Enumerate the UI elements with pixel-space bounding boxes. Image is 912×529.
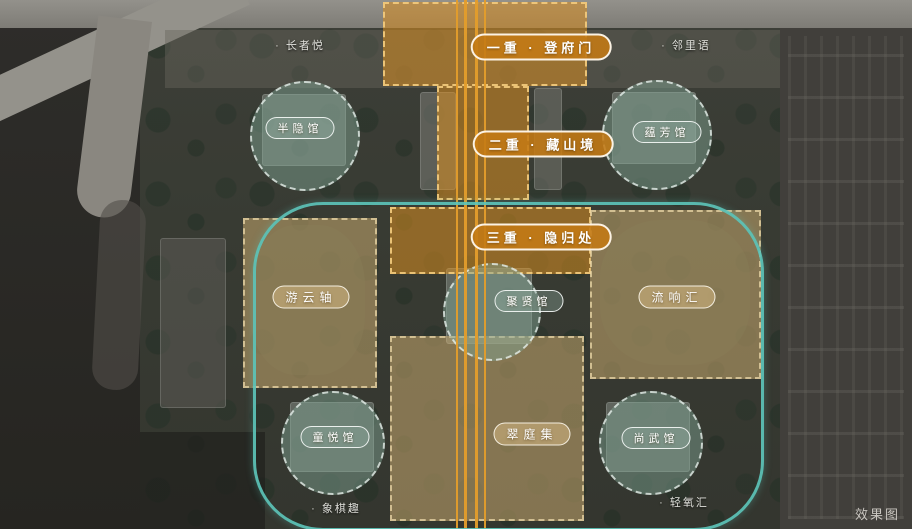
label-pavilion-banyin: 半隐馆 (266, 117, 335, 139)
label-pavilion-shangwu: 尚武馆 (622, 427, 691, 449)
label-pavilion-yunfang: 蕴芳馆 (633, 121, 702, 143)
label-pavilion-tongyue: 童悦馆 (301, 426, 370, 448)
label-axis-second-court: 二重 · 藏山境 (473, 131, 614, 158)
building-footprint (160, 238, 226, 408)
label-axis-third-retreat: 三重 · 隐归处 (471, 224, 612, 251)
rendering-watermark: 效果图 (855, 504, 900, 523)
parking-stripes (788, 36, 904, 519)
poi-neighbor-talk: · 邻里语 (661, 37, 711, 53)
poi-chess-fun: · 象棋趣 (311, 500, 361, 516)
label-cloud-axis: 游云轴 (272, 286, 349, 309)
poi-elder-joy: · 长者悦 (275, 37, 325, 53)
poi-oxygen-hub: · 轻氧汇 (659, 494, 709, 510)
teal-loop-path (253, 202, 764, 529)
label-pavilion-juxian: 聚贤馆 (495, 290, 564, 312)
parking-area (780, 26, 912, 529)
south-west-shadow (140, 432, 265, 529)
label-axis-first-gate: 一重 · 登府门 (471, 34, 612, 61)
label-emerald-court: 翠庭集 (493, 423, 570, 446)
label-stream-hub: 流响汇 (638, 286, 715, 309)
masterplan-rendering: 一重 · 登府门 二重 · 藏山境 三重 · 隐归处 半隐馆 蕴芳馆 游云轴 聚… (0, 0, 912, 529)
